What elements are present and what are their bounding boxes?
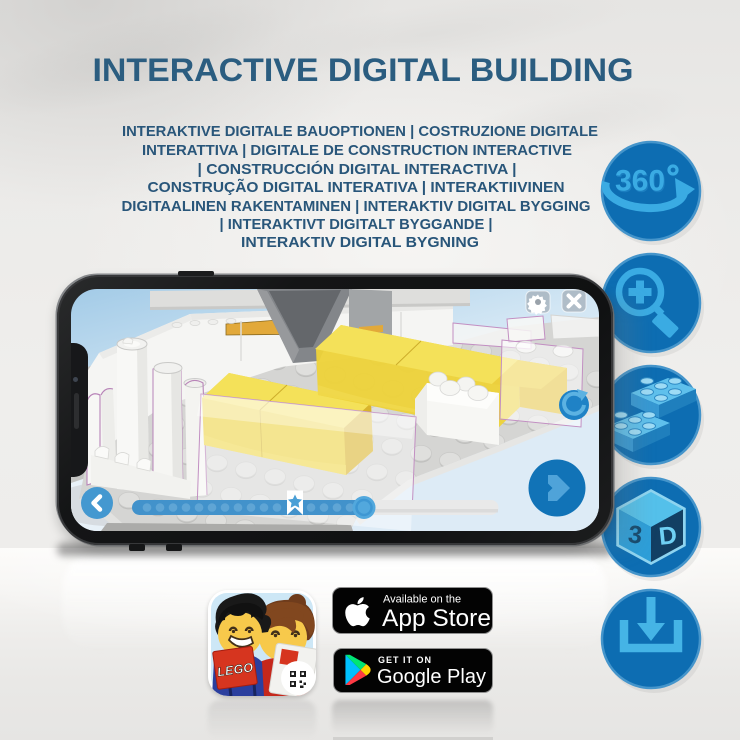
- svg-text:CONSTRUÇÃO DIGITAL INTERATIVA: CONSTRUÇÃO DIGITAL INTERATIVA | INTERAKT…: [148, 178, 565, 196]
- svg-text:360: 360: [615, 165, 665, 198]
- svg-text:INTERAKTIVE DIGITALE BAUOPTION: INTERAKTIVE DIGITALE BAUOPTIONEN | COSTR…: [122, 124, 598, 140]
- svg-text:GET IT ON: GET IT ON: [378, 655, 432, 665]
- svg-text:INTERATTIVA | DIGITALE DE CONS: INTERATTIVA | DIGITALE DE CONSTRUCTION I…: [142, 143, 572, 159]
- svg-text:| INTERAKTIVT DIGITALT BYGGAND: | INTERAKTIVT DIGITALT BYGGANDE |: [220, 217, 493, 233]
- svg-text:D: D: [657, 521, 678, 551]
- svg-text:INTERAKTIV DIGITAL BYGNING: INTERAKTIV DIGITAL BYGNING: [241, 235, 479, 251]
- svg-text:INTERACTIVE DIGITAL BUILDING: INTERACTIVE DIGITAL BUILDING: [93, 52, 634, 88]
- svg-text:DIGITAALINEN RAKENTAMINEN | IN: DIGITAALINEN RAKENTAMINEN | INTERAKTIV D…: [122, 199, 591, 215]
- svg-text:App Store: App Store: [382, 605, 491, 632]
- svg-text:Available on the: Available on the: [383, 594, 461, 606]
- svg-text:Google Play: Google Play: [377, 666, 486, 688]
- svg-text:| CONSTRUCCIÓN DIGITAL INTERAC: | CONSTRUCCIÓN DIGITAL INTERACTIVA |: [198, 160, 517, 178]
